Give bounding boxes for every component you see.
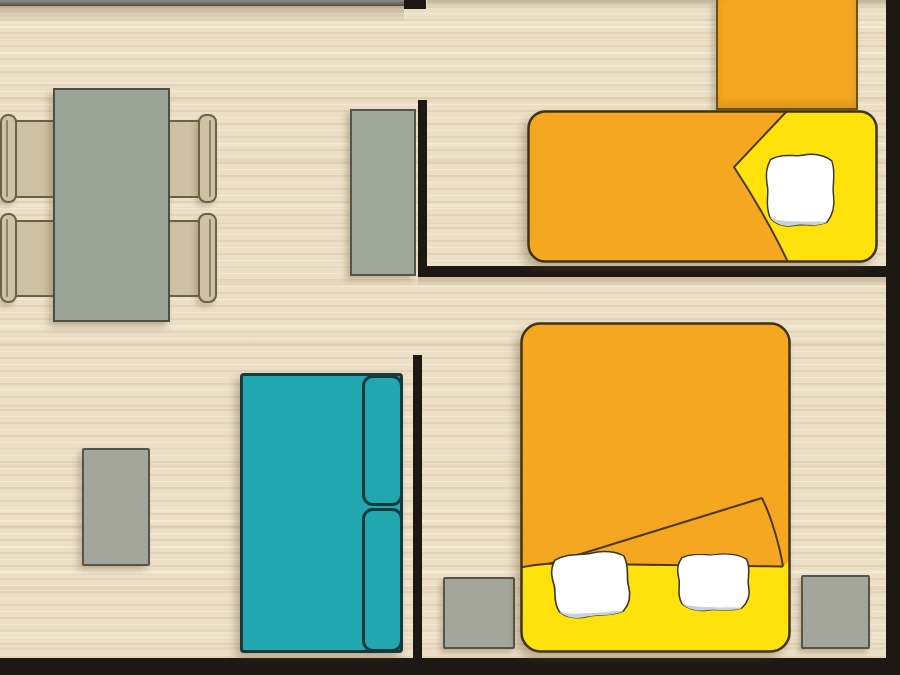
sideboard bbox=[350, 109, 416, 276]
double-bed bbox=[520, 322, 791, 653]
dining-chair-back bbox=[0, 213, 17, 303]
dining-chair-back bbox=[198, 114, 217, 203]
wall-interior-lower bbox=[413, 355, 422, 658]
wall-right bbox=[886, 0, 900, 675]
single-bed bbox=[527, 110, 878, 263]
wall-between-bedrooms bbox=[418, 266, 886, 277]
nightstand-right bbox=[801, 575, 870, 649]
sofa-back-cushion-top bbox=[362, 375, 403, 506]
double-bed-graphic bbox=[520, 322, 791, 653]
double-bed-pillow-right bbox=[676, 552, 750, 612]
wall-shadow bbox=[0, 6, 404, 22]
nightstand-left bbox=[443, 577, 515, 649]
single-bed-pillow bbox=[765, 153, 836, 228]
single-bed-graphic bbox=[527, 110, 878, 263]
sofa-back-cushion-bottom bbox=[362, 508, 403, 652]
chair-back-ridge bbox=[209, 219, 211, 297]
wardrobe bbox=[716, 0, 858, 110]
chair-back-ridge bbox=[6, 120, 8, 197]
chair-back-ridge bbox=[209, 120, 211, 197]
coffee-table bbox=[82, 448, 150, 566]
wall-shadow bbox=[418, 277, 886, 286]
wall-interior-upper bbox=[418, 100, 427, 277]
sofa bbox=[240, 373, 403, 653]
dining-table bbox=[53, 88, 170, 322]
floor-plan bbox=[0, 0, 900, 675]
double-bed-pillow-left bbox=[551, 550, 631, 619]
dining-chair-back bbox=[198, 213, 217, 303]
chair-back-ridge bbox=[6, 219, 8, 297]
wall-end-cap bbox=[404, 0, 426, 9]
dining-chair-back bbox=[0, 114, 17, 203]
wall-bottom bbox=[0, 658, 900, 675]
